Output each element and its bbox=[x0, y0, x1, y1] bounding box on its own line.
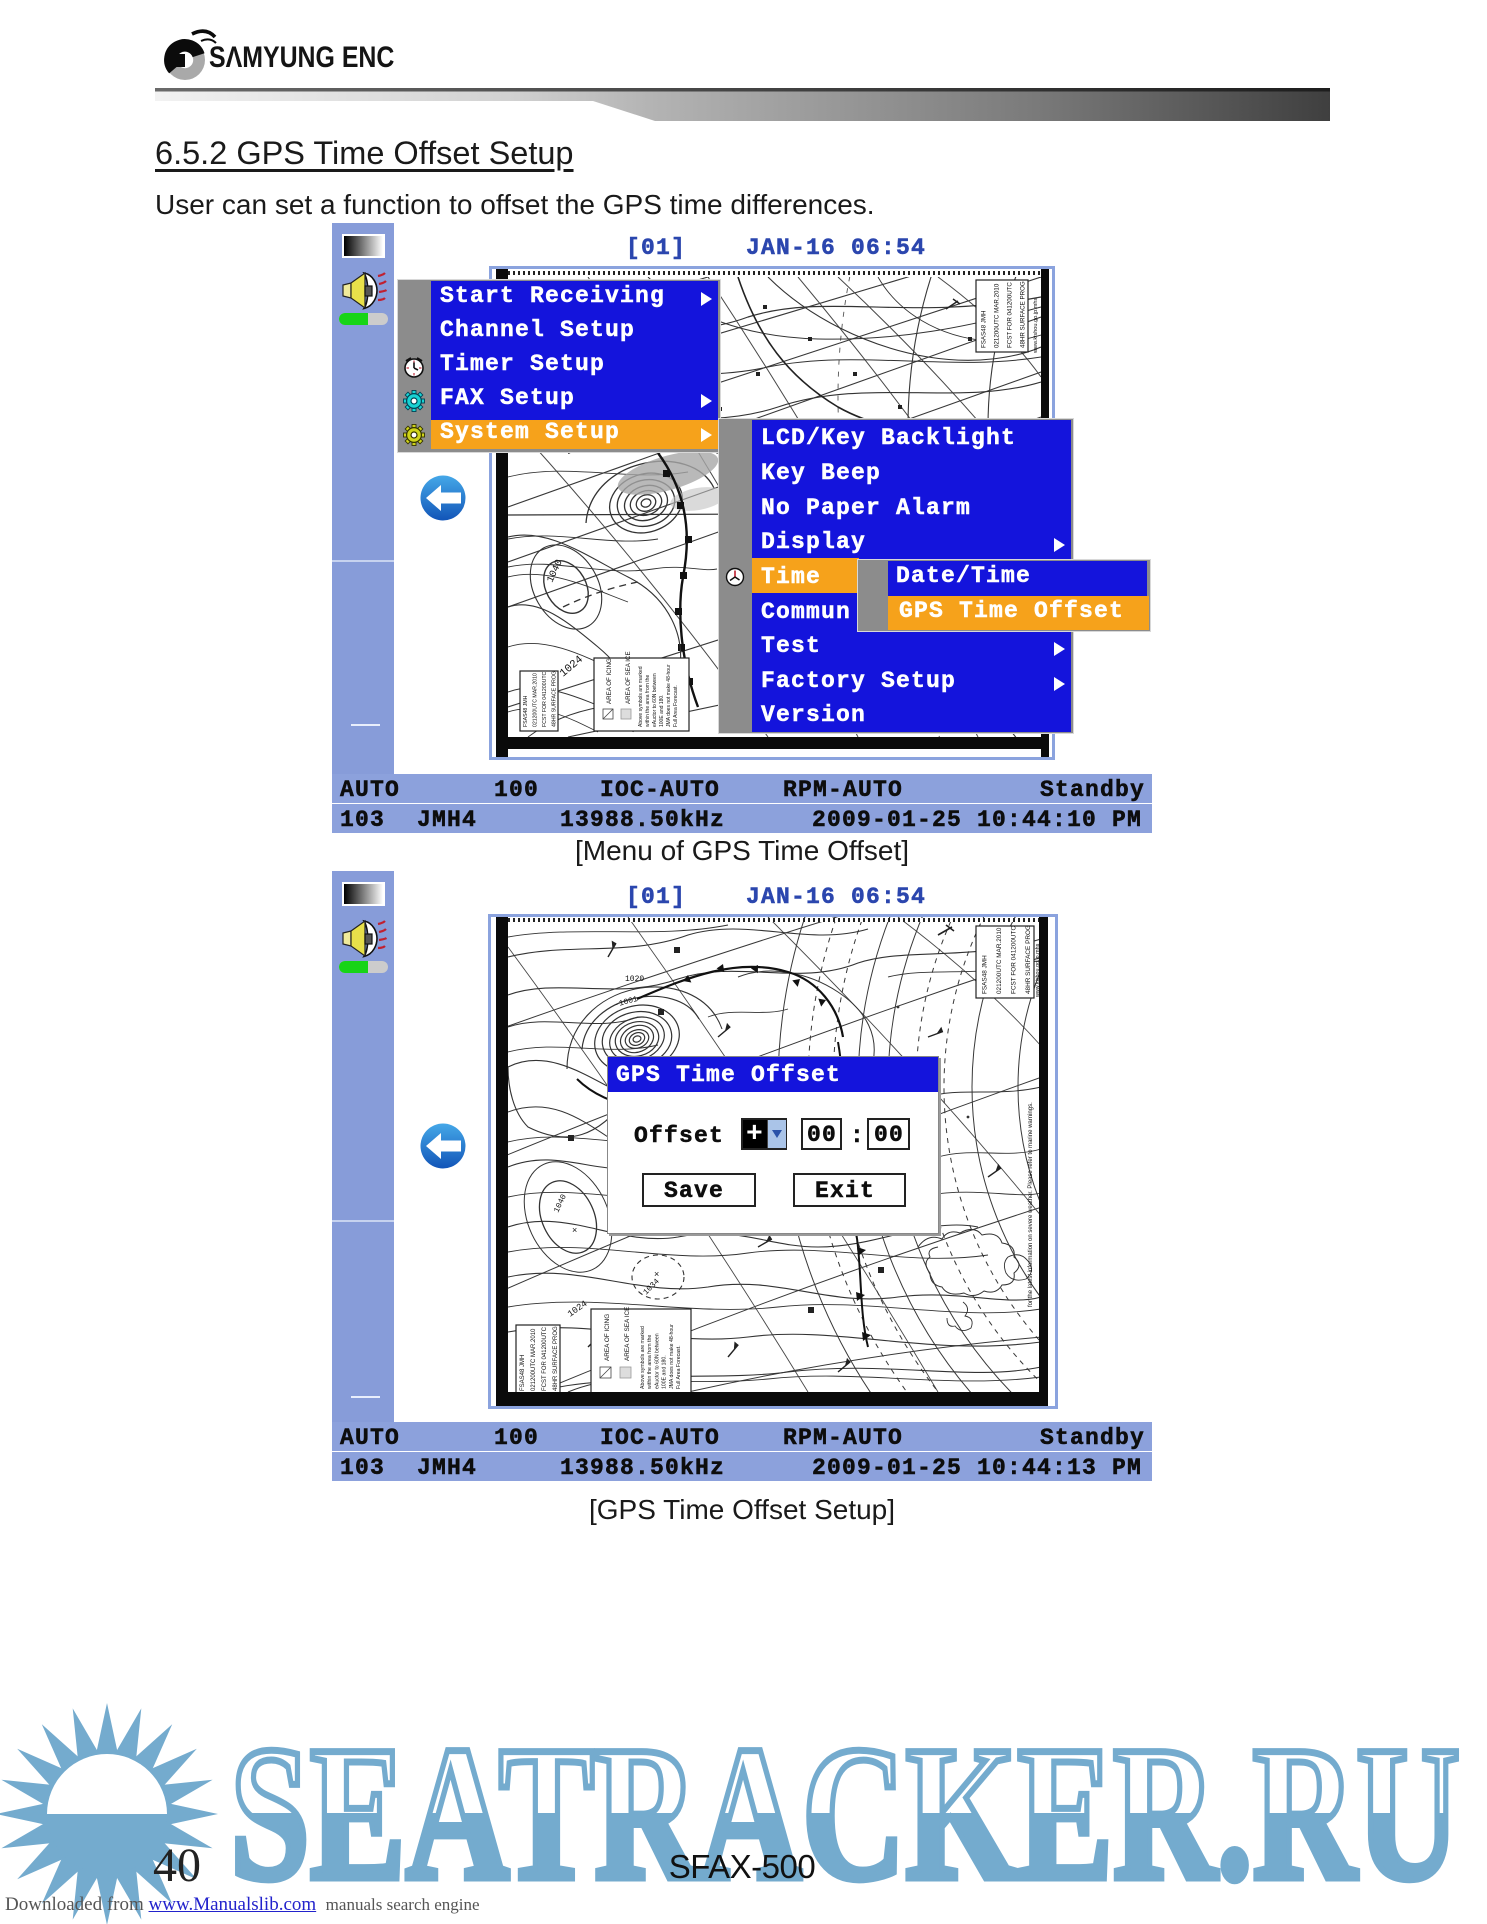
svg-text:JMA does not make 48-hour: JMA does not make 48-hour bbox=[666, 664, 672, 727]
svg-text:FCST FOR 041200UTC: FCST FOR 041200UTC bbox=[542, 671, 548, 727]
svg-text:1040: 1040 bbox=[553, 1193, 569, 1214]
svg-text:Above symbols are marked: Above symbols are marked bbox=[640, 1326, 646, 1389]
svg-text:48HR SURFACE PROG: 48HR SURFACE PROG bbox=[1025, 925, 1032, 994]
svg-text:for the latest information on: for the latest information on severe wea… bbox=[1028, 1102, 1034, 1307]
svg-text:AREA OF SEA ICE: AREA OF SEA ICE bbox=[625, 651, 632, 704]
svg-text:SEATRACKER.RU: SEATRACKER.RU bbox=[230, 1706, 1460, 1920]
svg-text:JMA does not make 48-hour: JMA does not make 48-hour bbox=[669, 1324, 675, 1389]
svg-text:021200UTC MAR.2010: 021200UTC MAR.2010 bbox=[996, 927, 1003, 994]
svg-text:×: × bbox=[572, 1225, 577, 1235]
svg-text:eAuctor to 60N between: eAuctor to 60N between bbox=[654, 1333, 660, 1389]
svg-text:021200UTC MAR.2010: 021200UTC MAR.2010 bbox=[993, 283, 1000, 348]
svg-text:eAuctor to 60N between: eAuctor to 60N between bbox=[652, 673, 658, 727]
svg-text:FCST FOR 041200UTC: FCST FOR 041200UTC bbox=[1010, 926, 1017, 994]
svg-text:within the area from the: within the area from the bbox=[645, 675, 651, 727]
svg-text:48HR SURFACE PROG: 48HR SURFACE PROG bbox=[551, 671, 557, 727]
svg-text:48HR SURFACE PROG: 48HR SURFACE PROG bbox=[553, 1326, 559, 1391]
svg-text:Full Area Forecast.: Full Area Forecast. bbox=[673, 685, 679, 727]
svg-text:within the area from the: within the area from the bbox=[647, 1335, 653, 1389]
svg-text:×: × bbox=[654, 1269, 659, 1279]
svg-text:1040: 1040 bbox=[546, 558, 566, 584]
svg-text:Full Area Forecast.: Full Area Forecast. bbox=[676, 1345, 682, 1389]
svg-text:100E and 180.: 100E and 180. bbox=[659, 694, 665, 727]
svg-text:AREA OF ICING: AREA OF ICING bbox=[606, 658, 613, 704]
svg-text:AREA OF ICING: AREA OF ICING bbox=[604, 1314, 611, 1361]
svg-text:FCST FOR 041200UTC: FCST FOR 041200UTC bbox=[542, 1326, 548, 1391]
svg-text:1020: 1020 bbox=[625, 975, 644, 984]
svg-text:Above symbols are marked: Above symbols are marked bbox=[638, 666, 644, 727]
svg-text:FSAS48 JMH: FSAS48 JMH bbox=[980, 311, 987, 348]
svg-text:FSAS48 JMH: FSAS48 JMH bbox=[523, 695, 529, 727]
svg-text:021200UTC MAR.2010: 021200UTC MAR.2010 bbox=[531, 1328, 537, 1391]
svg-text:1024: 1024 bbox=[558, 654, 586, 680]
svg-text:FSAS48 JMH: FSAS48 JMH bbox=[981, 955, 988, 994]
svg-text:48HR SURFACE PROG: 48HR SURFACE PROG bbox=[1019, 281, 1026, 348]
svg-text:AREA OF SEA ICE: AREA OF SEA ICE bbox=[624, 1307, 631, 1361]
svg-text:FSAS48 JMH: FSAS48 JMH bbox=[520, 1355, 526, 1391]
svg-text:1034: 1034 bbox=[642, 1277, 662, 1297]
svg-text:www.kishou.go.jp.mhs: www.kishou.go.jp.mhs bbox=[1033, 297, 1039, 354]
svg-text:021200UTC MAR.2010: 021200UTC MAR.2010 bbox=[532, 673, 538, 727]
svg-text:100E and 180.: 100E and 180. bbox=[662, 1355, 668, 1389]
svg-text:FCST FOR 041200UTC: FCST FOR 041200UTC bbox=[1006, 282, 1013, 348]
